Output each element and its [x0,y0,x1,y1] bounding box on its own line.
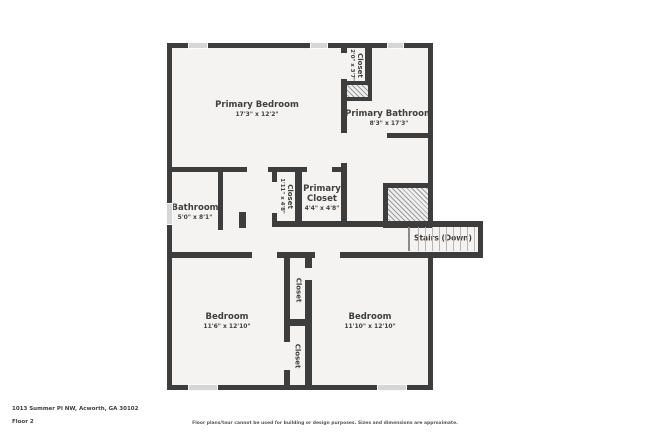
wall-segment [340,252,483,258]
wall-segment [218,172,223,230]
room-label-primary-bathroom: Primary Bathroom 8'3" x 17'3" [345,109,433,127]
wall-segment [365,47,372,83]
floor-plan: Primary Bedroom 17'3" x 12'2" Closet 2'0… [0,0,650,434]
room-name: Bedroom [203,312,250,322]
room-name: Closet [285,178,294,214]
wall-segment [284,319,312,326]
room-name: Primary Closet [297,184,347,204]
room-dims: 11'6" x 12'10" [203,323,250,330]
room-label-primary-closet: Primary Closet 4'4" x 4'8" [297,184,347,212]
room-label-top-closet: Closet 2'0" x 3'7" [348,49,364,81]
wall-segment [428,257,433,390]
wall-segment [387,133,433,138]
stair-tread [439,227,440,251]
room-label-closet-upper: Closet [294,278,303,303]
window [188,384,218,391]
room-name: Closet [355,49,364,81]
room-dims: 5'0" x 8'1" [171,214,218,221]
wall-segment [272,221,483,227]
window [166,203,173,225]
stair-tread [467,227,468,251]
stair-tread [453,227,454,251]
stair-tread [425,227,426,251]
window [377,384,407,391]
stair-tread [432,227,433,251]
stairs-divider [408,227,410,251]
room-name: Bathroom [171,203,218,213]
wall-segment [284,370,290,385]
wall-segment [272,172,277,182]
disclaimer-text: Floor plans/tour cannot be used for buil… [0,421,650,426]
wall-segment [341,163,347,227]
wall-segment [272,213,277,227]
wall-segment [167,167,247,172]
wall-segment [341,79,347,133]
room-dims: 1'11" x 4'8" [278,178,285,214]
stair-tread [460,227,461,251]
window [188,42,208,49]
room-label-primary-bedroom: Primary Bedroom 17'3" x 12'2" [215,100,299,118]
room-name: Primary Bedroom [215,100,299,110]
window [310,42,328,49]
window [387,42,404,49]
room-dims: 17'3" x 12'2" [215,111,299,118]
room-dims: 11'10" x 12'10" [344,323,395,330]
room-dims: 8'3" x 17'3" [345,120,433,127]
room-label-closet-lower: Closet [293,344,302,369]
room-name: Closet [294,278,303,303]
room-label-bathroom: Bathroom 5'0" x 8'1" [171,203,218,221]
room-dims: 2'0" x 3'7" [348,49,355,81]
room-name: Closet [293,344,302,369]
wall-segment [284,258,290,342]
stair-tread [418,227,419,251]
room-name: Bedroom [344,312,395,322]
stairs-label: Stairs (Down) [414,234,472,243]
room-label-bedroom-left: Bedroom 11'6" x 12'10" [203,312,250,330]
floorplan-page: Primary Bedroom 17'3" x 12'2" Closet 2'0… [0,0,650,434]
room-label-bedroom-right: Bedroom 11'10" x 12'10" [344,312,395,330]
stair-tread [474,227,475,251]
room-label-hall-closet: Closet 1'11" x 4'8" [278,178,294,214]
room-name: Primary Bathroom [345,109,433,119]
wall-segment [341,47,347,53]
address-text: 1013 Summer Pl NW, Acworth, GA 30102 [12,406,138,412]
footer: 1013 Summer Pl NW, Acworth, GA 30102 Flo… [0,398,650,434]
wall-segment [167,252,252,258]
wall-segment [239,212,246,228]
wall-segment [295,172,302,221]
wall-segment [305,258,312,268]
room-dims: 4'4" x 4'8" [297,205,347,212]
wall-segment [305,280,312,385]
stair-tread [446,227,447,251]
